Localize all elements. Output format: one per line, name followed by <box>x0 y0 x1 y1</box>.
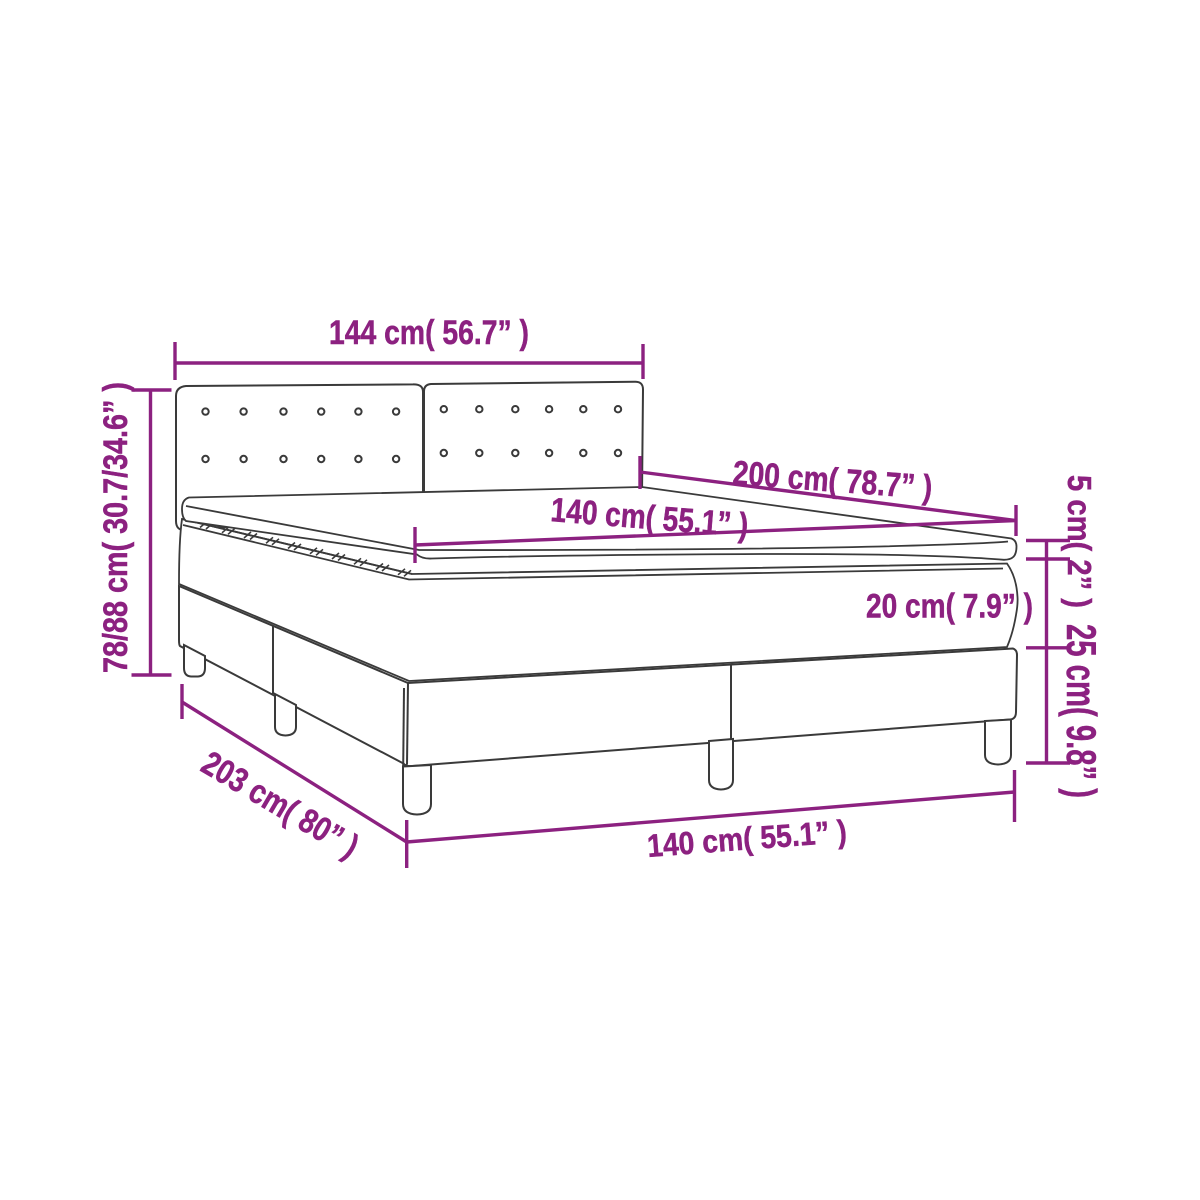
svg-text:144 cm( 56.7” ): 144 cm( 56.7” ) <box>329 314 529 352</box>
svg-text:78/88 cm( 30.7/34.6” ): 78/88 cm( 30.7/34.6” ) <box>97 382 135 673</box>
svg-text:5 cm( 2” ): 5 cm( 2” ) <box>1061 475 1098 608</box>
svg-text:25 cm( 9.8” ): 25 cm( 9.8” ) <box>1058 624 1105 798</box>
svg-text:20 cm( 7.9” ): 20 cm( 7.9” ) <box>866 588 1033 626</box>
